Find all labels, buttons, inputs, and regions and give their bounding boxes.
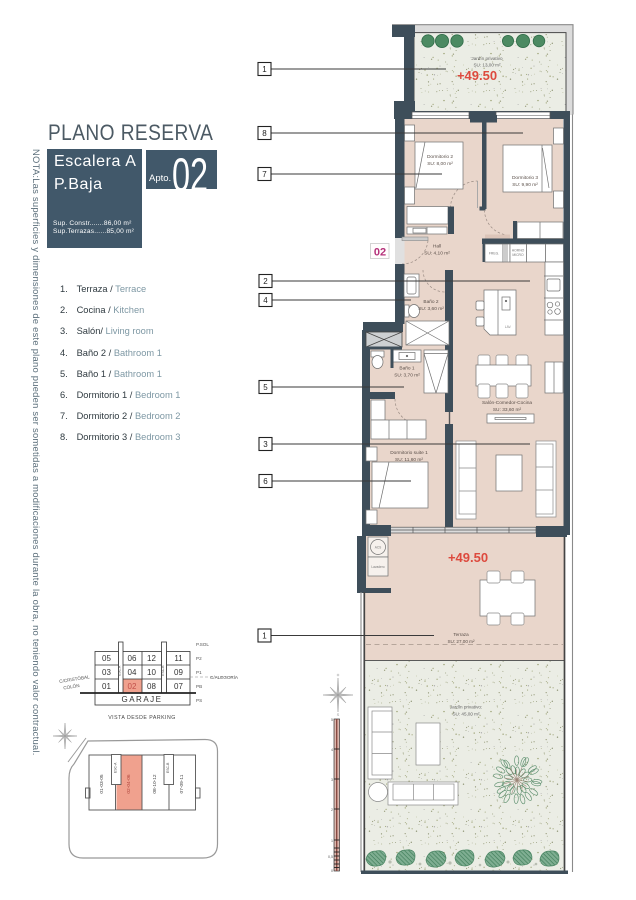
svg-text:02-04-06: 02-04-06: [126, 774, 132, 794]
svg-text:SU: 27,00 m²: SU: 27,00 m²: [447, 639, 475, 644]
svg-text:ESC.A: ESC.A: [118, 665, 122, 676]
svg-text:3: 3: [263, 440, 268, 449]
svg-text:03: 03: [102, 668, 111, 677]
svg-text:Baño 1: Baño 1: [399, 366, 415, 372]
svg-text:PB: PB: [196, 684, 202, 689]
svg-text:10: 10: [147, 668, 156, 677]
svg-text:C/CRISTÓBAL: C/CRISTÓBAL: [59, 673, 91, 684]
svg-text:2: 2: [263, 277, 268, 286]
svg-text:08-10-12: 08-10-12: [152, 774, 158, 794]
svg-text:SU: 4,10 m²: SU: 4,10 m²: [424, 251, 450, 257]
svg-text:C/ALEGORÍA: C/ALEGORÍA: [210, 674, 239, 680]
svg-text:Dormitorio 3: Dormitorio 3: [512, 175, 538, 181]
svg-text:PS: PS: [196, 698, 202, 703]
svg-text:1: 1: [262, 632, 267, 641]
svg-text:06: 06: [128, 654, 137, 663]
svg-text:GARAJE: GARAJE: [121, 695, 162, 704]
svg-text:Dormitorio 2: Dormitorio 2: [427, 154, 453, 160]
svg-text:S: S: [337, 712, 340, 717]
svg-text:02: 02: [128, 682, 137, 691]
svg-text:8: 8: [262, 129, 267, 138]
svg-text:SU: 9,90 m²: SU: 9,90 m²: [512, 182, 538, 188]
svg-text:Salón-Comedor-Cocina: Salón-Comedor-Cocina: [482, 400, 532, 406]
svg-text:Jardín privativo:: Jardín privativo:: [450, 705, 482, 710]
svg-text:FREG.: FREG.: [489, 252, 499, 256]
svg-text:07: 07: [174, 682, 183, 691]
svg-text:01: 01: [102, 682, 111, 691]
svg-text:LAV.: LAV.: [505, 325, 512, 329]
svg-text:SU: 8,00 m²: SU: 8,00 m²: [427, 161, 453, 167]
svg-text:2: 2: [331, 808, 333, 812]
svg-text:11: 11: [174, 654, 183, 663]
svg-text:1: 1: [331, 839, 333, 843]
svg-text:ESC-A: ESC-A: [113, 762, 117, 773]
svg-text:ACS: ACS: [375, 546, 382, 550]
svg-text:0,5: 0,5: [328, 855, 333, 859]
svg-text:SU: 33,60 m²: SU: 33,60 m²: [493, 407, 522, 413]
svg-text:Jardín privativo: Jardín privativo: [471, 56, 503, 61]
svg-text:ESC.B: ESC.B: [161, 665, 165, 676]
svg-text:Terraza: Terraza: [453, 632, 469, 637]
svg-text:04: 04: [128, 668, 137, 677]
svg-text:SU: 3,70 m²: SU: 3,70 m²: [394, 373, 420, 379]
svg-text:P2: P2: [196, 656, 202, 661]
svg-text:Dormitorio suite 1: Dormitorio suite 1: [390, 450, 428, 456]
svg-text:HORNO: HORNO: [512, 249, 525, 253]
svg-text:MICRO: MICRO: [512, 253, 524, 257]
svg-text:07-09-11: 07-09-11: [179, 774, 185, 793]
svg-text:1: 1: [262, 65, 267, 74]
svg-text:4: 4: [263, 296, 268, 305]
svg-text:Hall: Hall: [433, 244, 441, 250]
svg-text:COLÓN: COLÓN: [63, 682, 80, 690]
svg-text:P.SOL: P.SOL: [196, 642, 209, 647]
svg-text:7: 7: [262, 170, 267, 179]
svg-text:+49.50: +49.50: [448, 550, 488, 565]
svg-text:02: 02: [374, 247, 386, 259]
svg-text:Baño 2: Baño 2: [423, 299, 439, 305]
svg-text:ESC-B: ESC-B: [166, 762, 170, 773]
svg-text:P1: P1: [196, 670, 202, 675]
svg-text:+49.50: +49.50: [457, 68, 497, 83]
svg-text:09: 09: [174, 668, 183, 677]
svg-text:12: 12: [147, 654, 156, 663]
svg-text:4: 4: [331, 748, 333, 752]
svg-text:SU: 45,00 m²: SU: 45,00 m²: [452, 712, 480, 717]
svg-text:01-03-05: 01-03-05: [99, 774, 105, 794]
svg-text:05: 05: [102, 654, 111, 663]
svg-text:5: 5: [263, 383, 268, 392]
svg-text:SU: 3,60 m²: SU: 3,60 m²: [418, 306, 444, 312]
svg-text:VISTA DESDE PARKING: VISTA DESDE PARKING: [108, 715, 176, 721]
svg-text:6: 6: [263, 477, 268, 486]
svg-text:Lavadero: Lavadero: [371, 565, 385, 569]
svg-text:3: 3: [331, 778, 333, 782]
svg-text:0: 0: [331, 869, 333, 873]
svg-text:5: 5: [331, 718, 333, 722]
svg-text:SU: 13,00 m²: SU: 13,00 m²: [473, 63, 501, 68]
svg-text:08: 08: [147, 682, 156, 691]
